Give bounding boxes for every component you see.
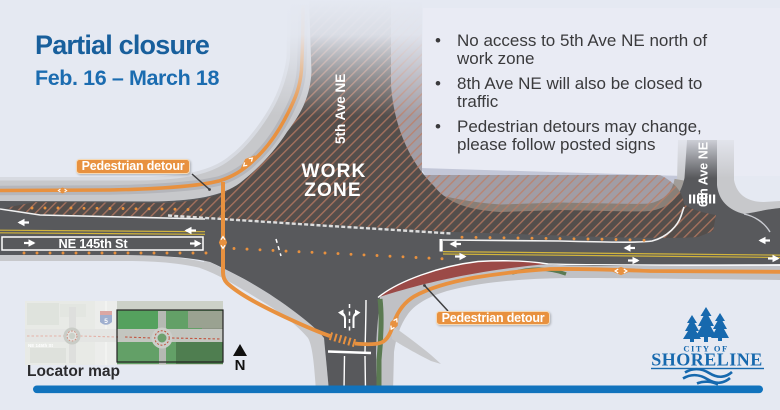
svg-text:ZONE: ZONE	[304, 180, 362, 201]
svg-text:NE 145th St: NE 145th St	[59, 236, 129, 251]
svg-text:WORK: WORK	[302, 161, 367, 182]
svg-text:5th Ave NE: 5th Ave NE	[333, 74, 348, 144]
svg-text:SHORELINE: SHORELINE	[651, 350, 763, 370]
svg-text:N: N	[235, 357, 246, 374]
